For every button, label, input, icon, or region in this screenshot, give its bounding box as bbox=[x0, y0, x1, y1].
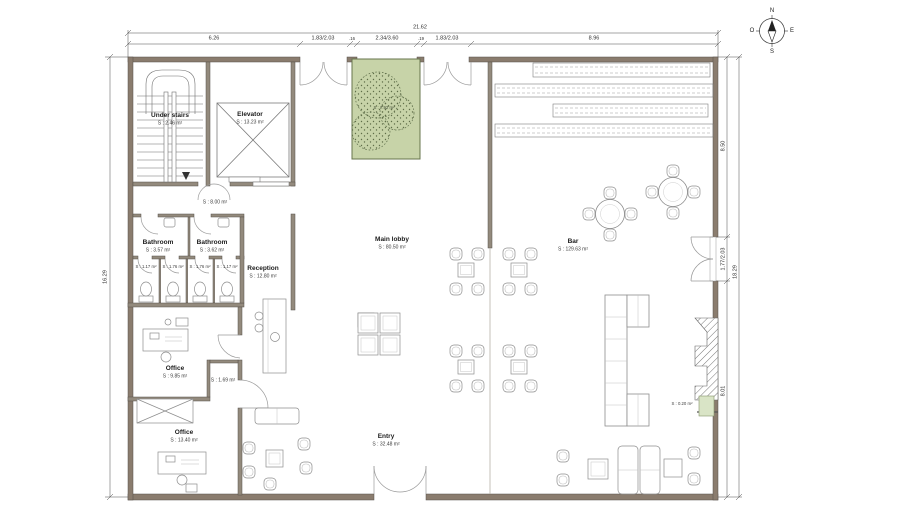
room-label-entry: Entry bbox=[378, 434, 395, 441]
room-label-bathroom-left: Bathroom bbox=[143, 240, 174, 247]
door-arcs bbox=[138, 62, 716, 494]
floor-plan-drawing bbox=[0, 0, 900, 506]
room-label-reception: Reception bbox=[247, 266, 278, 273]
dim-top-seg-6: 1.83/2.03 bbox=[436, 36, 459, 42]
round-table-3 bbox=[646, 165, 700, 219]
room-area-entry: S : 32.48 m² bbox=[372, 443, 399, 448]
dim-right-seg-1: 8.50 bbox=[721, 141, 727, 152]
room-area-bar: S : 129.63 m² bbox=[558, 248, 588, 253]
room-area-reception: S : 12.80 m² bbox=[249, 275, 276, 280]
room-area-elevator: S : 13.23 m² bbox=[236, 121, 263, 126]
room-area-hall: S : 8.00 m² bbox=[203, 201, 227, 206]
compass-needle-south bbox=[768, 31, 776, 42]
dim-left-total: 16.29 bbox=[103, 270, 109, 284]
room-area-stall-2: S : 1.76 m² bbox=[162, 265, 183, 269]
lobby-seating-upper bbox=[450, 248, 537, 295]
room-area-vestibule: S : 1.69 m² bbox=[211, 379, 235, 384]
office-furniture bbox=[137, 318, 206, 492]
room-label-under-stairs: Under stairs bbox=[151, 113, 189, 120]
compass-rose bbox=[756, 15, 788, 47]
room-area-bathroom-left: S : 3.57 m² bbox=[146, 249, 170, 254]
window-box bbox=[137, 399, 193, 423]
room-label-main-lobby: Main lobby bbox=[375, 237, 409, 244]
room-area-stall-4: S : 1.17 m² bbox=[216, 265, 237, 269]
dim-top-seg-3: .16 bbox=[349, 37, 355, 41]
room-label-elevator: Elevator bbox=[237, 112, 263, 119]
bar-area bbox=[495, 63, 900, 494]
lobby-square-tables bbox=[358, 313, 400, 355]
room-area-small-planter: S : 0.20 m² bbox=[671, 402, 692, 406]
round-table-2 bbox=[583, 187, 637, 241]
compass-east-label: E bbox=[790, 28, 794, 34]
dim-top-seg-5: .19 bbox=[418, 37, 424, 41]
room-area-stall-3: S : 1.76 m² bbox=[189, 265, 210, 269]
dim-right-seg-3: 8.01 bbox=[721, 386, 727, 397]
room-area-office-top: S : 9.85 m² bbox=[163, 375, 187, 380]
room-area-office-bottom: S : 13.40 m² bbox=[170, 439, 197, 444]
lobby-seating-lower bbox=[450, 345, 537, 392]
room-label-bathroom-right: Bathroom bbox=[197, 240, 228, 247]
dim-top-seg-4: 2.34/3.60 bbox=[376, 36, 399, 42]
walls bbox=[128, 57, 718, 500]
room-area-bathroom-right: S : 3.62 m² bbox=[200, 249, 224, 254]
bar-bottom-seating bbox=[557, 446, 700, 494]
dim-top-seg-7: 8.96 bbox=[589, 36, 600, 42]
dim-right-total: 18.29 bbox=[733, 265, 739, 279]
room-label-office-top: Office bbox=[166, 366, 184, 373]
room-area-stall-1: S : 1.17 m² bbox=[135, 265, 156, 269]
small-planter bbox=[699, 396, 714, 416]
dim-right-seg-2: 1.77/2.03 bbox=[721, 248, 727, 271]
entry-lounge bbox=[243, 408, 312, 490]
room-area-under-stairs: S : 2.46 m² bbox=[158, 122, 182, 127]
room-label-office-bottom: Office bbox=[175, 430, 193, 437]
compass-needle-north bbox=[768, 20, 776, 31]
compass-south-label: S bbox=[770, 49, 774, 55]
bar-shelving bbox=[495, 63, 713, 137]
compass-north-label: N bbox=[770, 8, 774, 14]
compass-west-label: O bbox=[750, 28, 755, 34]
lobby-furniture bbox=[358, 248, 537, 392]
dim-top-seg-2: 1.83/2.03 bbox=[312, 36, 335, 42]
room-area-main-lobby: S : 80.50 m² bbox=[378, 246, 405, 251]
room-label-bar: Bar bbox=[568, 239, 579, 246]
dim-top-total: 21.62 bbox=[413, 25, 427, 31]
room-area-planter: S : 7.92 m² bbox=[373, 106, 394, 110]
dim-top-seg-1: 6.26 bbox=[209, 36, 220, 42]
bar-counter bbox=[605, 295, 649, 426]
floor-plan-page: Under stairs S : 2.46 m² Elevator S : 13… bbox=[0, 0, 900, 506]
reception-desk bbox=[255, 299, 286, 373]
